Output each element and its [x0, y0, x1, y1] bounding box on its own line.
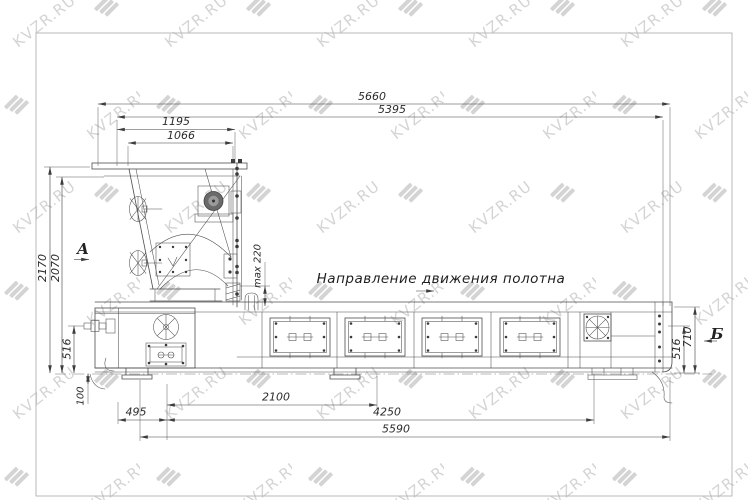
dim-label-1195: 1195: [162, 115, 190, 128]
dim-label-1066: 1066: [167, 129, 195, 142]
dim-label-max-220: max 220: [253, 244, 264, 288]
drawing-canvas: KVZR.RU KVZR.RU: [0, 0, 750, 500]
dim-label-516-left: 516: [61, 339, 74, 360]
section-b-label: Б: [710, 325, 724, 343]
dim-label-516-right: 516: [670, 339, 683, 360]
watermark-layer: [0, 0, 750, 500]
dim-label-4250: 4250: [373, 406, 401, 419]
dim-label-495: 495: [126, 406, 147, 419]
section-a-label: А: [76, 240, 89, 258]
section-marker-a: А: [74, 240, 89, 260]
dim-label-5660: 5660: [358, 90, 386, 103]
direction-label: Направление движения полотна: [317, 271, 566, 287]
dim-label-2170: 2170: [36, 254, 49, 282]
dim-label-100: 100: [76, 386, 87, 405]
dim-label-2070: 2070: [49, 254, 62, 282]
dim-label-5590: 5590: [382, 423, 410, 436]
dim-label-2100: 2100: [262, 391, 290, 404]
dim-label-5395: 5395: [378, 103, 406, 116]
